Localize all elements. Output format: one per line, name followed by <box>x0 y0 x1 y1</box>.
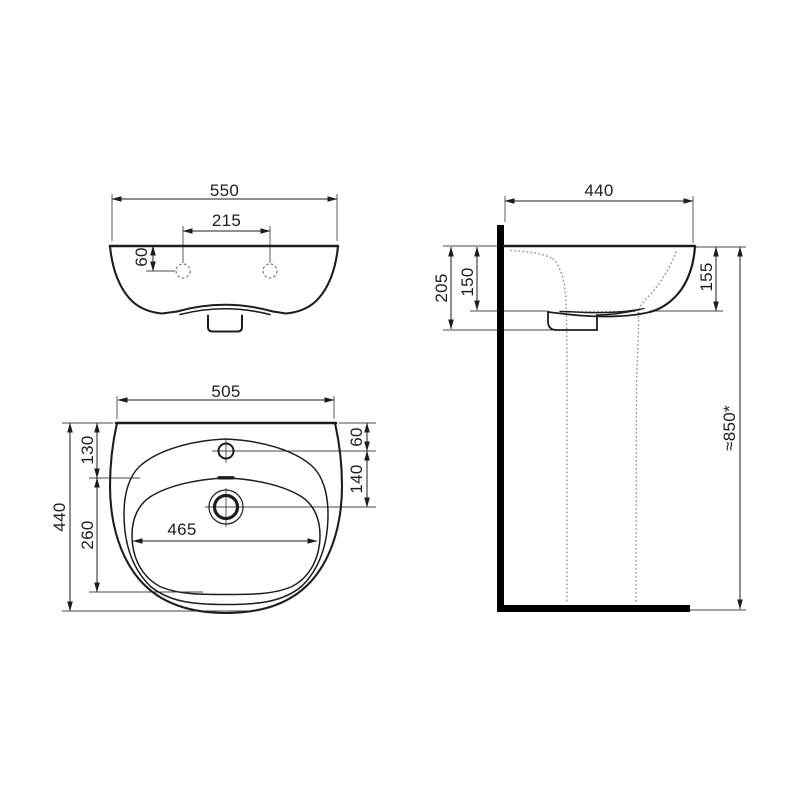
plan-rim-to-tap-label: 60 <box>347 427 366 447</box>
plan-bowl-width-label: 465 <box>167 520 196 539</box>
plan-rim-to-bowl-label: 130 <box>78 435 97 464</box>
drawing-canvas: 550 215 60 <box>0 0 800 800</box>
right-mounting-hole <box>263 264 277 278</box>
plan-width-label: 505 <box>211 382 240 401</box>
wall-section <box>497 225 504 612</box>
side-bowl-depth-label: 150 <box>458 267 477 296</box>
front-width-label: 550 <box>210 181 239 200</box>
side-wall-to-trap-label: 205 <box>432 273 451 302</box>
front-view: 550 215 60 <box>110 181 338 332</box>
side-mounting-height-label: ≈850* <box>720 405 739 451</box>
front-hole-spacing-label: 215 <box>212 211 241 230</box>
side-basin-outline <box>504 246 695 330</box>
pedestal-front-edge <box>636 252 676 604</box>
side-depth-label: 440 <box>584 181 613 200</box>
plan-view: 505 440 130 260 465 60 140 <box>50 382 376 613</box>
side-view: 440 205 150 155 ≈850* <box>432 181 746 612</box>
side-apron-height-label: 155 <box>697 262 716 291</box>
plan-tap-to-drain-label: 140 <box>347 464 366 493</box>
side-hidden-lines <box>511 251 676 605</box>
plan-bowl-length-label: 260 <box>78 520 97 549</box>
plan-extension-lines <box>62 396 376 611</box>
side-dimension-lines <box>451 201 740 609</box>
side-extension-lines <box>443 196 746 610</box>
plan-depth-label: 440 <box>50 502 69 531</box>
front-drain-outlet <box>208 316 242 332</box>
floor-section <box>497 605 690 612</box>
washbasin-technical-drawing: 550 215 60 <box>0 0 800 800</box>
hidden-back-rim <box>511 251 553 260</box>
front-hole-drop-label: 60 <box>132 247 151 267</box>
pedestal-back-edge <box>553 259 567 604</box>
front-mounting-holes <box>176 264 277 278</box>
left-mounting-hole <box>176 264 190 278</box>
